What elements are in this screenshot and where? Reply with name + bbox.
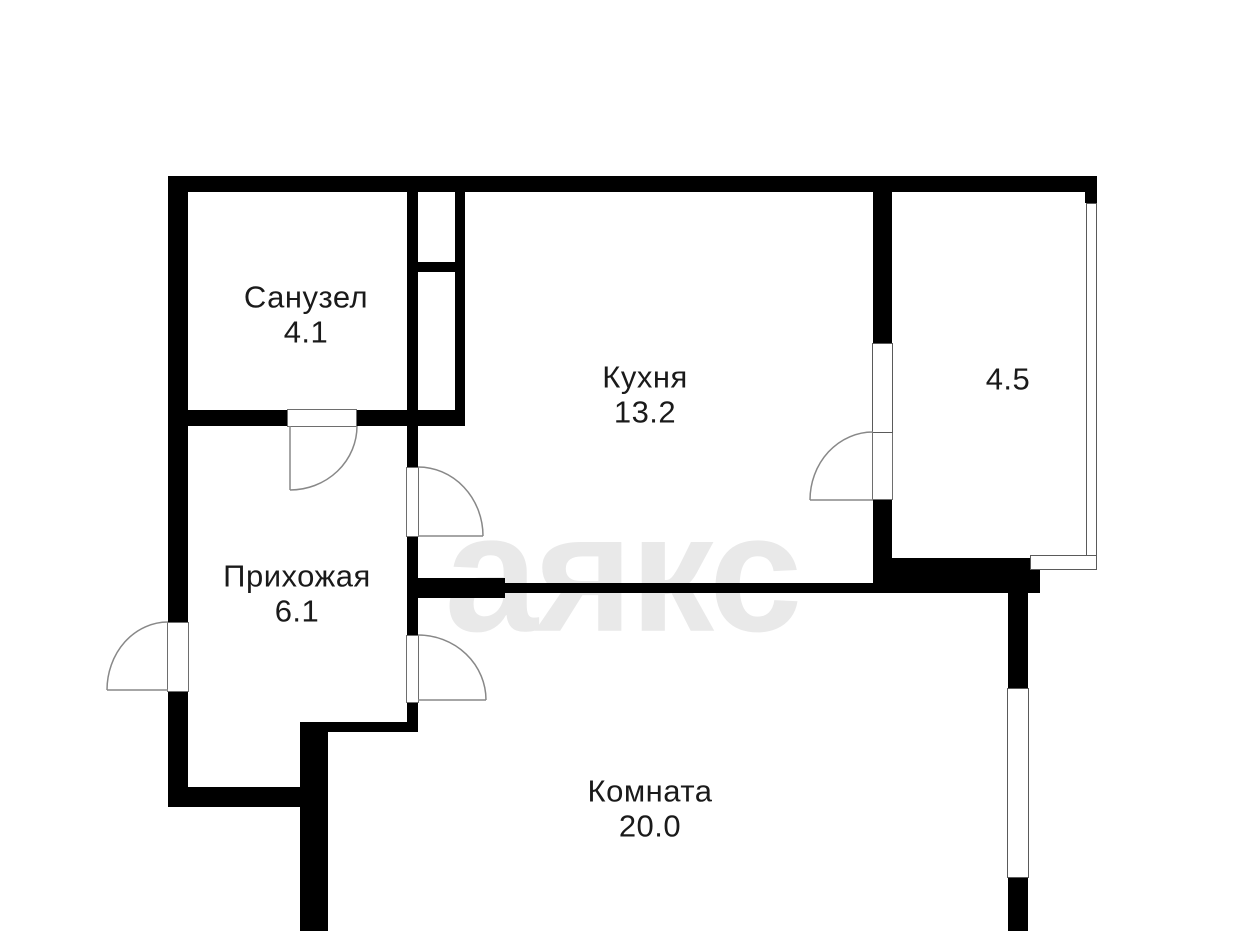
- room-label-loggia: 4.5: [986, 363, 1031, 398]
- loggia-door-opening: [872, 432, 893, 500]
- wall-left-upper: [168, 192, 188, 622]
- room-label-sanuzel: Санузел 4.1: [244, 280, 368, 349]
- room-name: Комната: [588, 774, 713, 809]
- wall-top: [168, 176, 1097, 192]
- wall-partition-thin: [505, 583, 873, 593]
- room-name: Санузел: [244, 280, 368, 315]
- entrance-door-opening: [167, 622, 189, 692]
- bathroom-door-opening: [287, 409, 357, 427]
- wall-room-left: [300, 722, 328, 931]
- bathroom-door-arc: [290, 426, 357, 490]
- wall-room-right-lower: [1008, 878, 1028, 931]
- room-area: 6.1: [223, 594, 371, 629]
- kitchen-loggia-window: [872, 343, 893, 433]
- entrance-door-arc: [107, 622, 168, 690]
- wall-loggia-corner: [1085, 176, 1097, 203]
- wall-room-right-upper: [1008, 593, 1028, 688]
- agency-watermark: аякс: [445, 477, 800, 670]
- wall-duct-divider: [418, 262, 455, 272]
- loggia-glazing-right: [1086, 203, 1097, 570]
- floor-plan: аякс Санузел 4.1 Кухня: [0, 0, 1236, 931]
- room-label-komnata: Комната 20.0: [588, 774, 713, 843]
- loggia-glazing-bottom: [1030, 555, 1097, 570]
- loggia-door-arc: [810, 432, 873, 500]
- wall-under-loggia: [873, 558, 1040, 593]
- room-area: 13.2: [602, 395, 687, 430]
- room-area: 20.0: [588, 809, 713, 844]
- room-name: Прихожая: [223, 559, 371, 594]
- kitchen-door-opening: [406, 467, 419, 537]
- room-label-prihozhaya: Прихожая 6.1: [223, 559, 371, 628]
- room-name: Кухня: [602, 360, 687, 395]
- room-label-kuhnya: Кухня 13.2: [602, 360, 687, 429]
- wall-duct-right: [455, 192, 465, 426]
- room-door-opening: [406, 635, 419, 703]
- wall-partition-thick: [407, 578, 505, 598]
- room-window: [1007, 688, 1029, 878]
- room-area: 4.5: [986, 363, 1031, 398]
- wall-room-top-step: [300, 722, 418, 732]
- room-area: 4.1: [244, 315, 368, 350]
- wall-hall-bottom: [168, 787, 328, 807]
